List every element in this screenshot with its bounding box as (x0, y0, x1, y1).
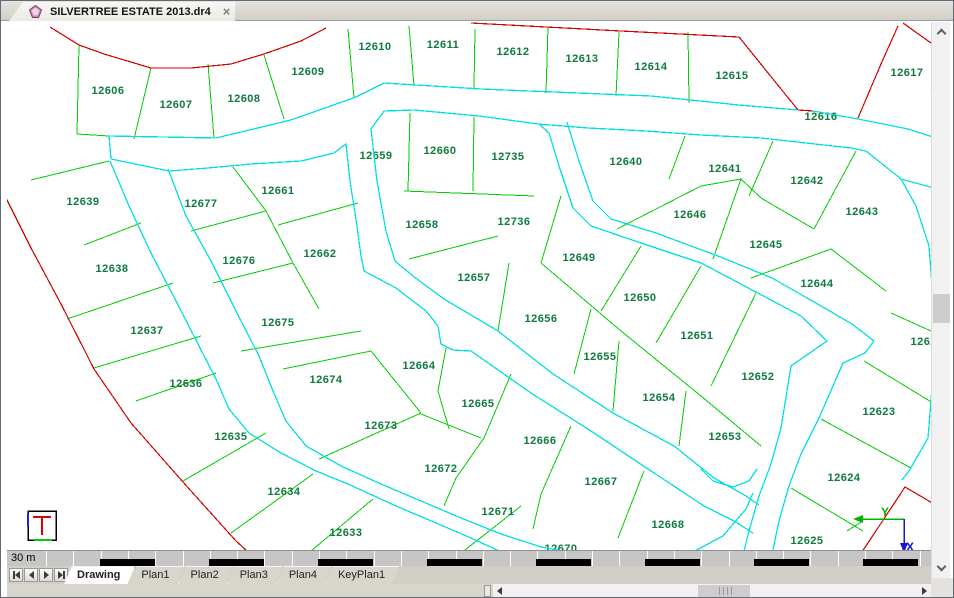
lot-label: 12634 (267, 486, 300, 498)
parcel-line (231, 474, 313, 533)
road-line (701, 469, 757, 487)
scale-label: 30 m (11, 552, 35, 564)
parcel-line (77, 134, 109, 136)
scale-tick (401, 551, 402, 566)
parcel-line (409, 236, 498, 259)
lot-label: 12637 (130, 325, 163, 337)
parcel-line (31, 161, 109, 180)
sheet-tab-plan3[interactable]: Plan3 (227, 566, 283, 584)
lot-label: 12658 (405, 219, 438, 231)
sheet-tab-plan4[interactable]: Plan4 (276, 566, 332, 584)
lot-label: 12736 (497, 216, 530, 228)
lot-label: 12615 (715, 70, 748, 82)
lot-label: 12646 (673, 209, 706, 221)
parcel-line (409, 26, 414, 86)
lot-label: 12609 (291, 66, 324, 78)
road-line (109, 136, 111, 159)
lot-label: 12673 (364, 420, 397, 432)
lot-label: 12625 (790, 535, 823, 547)
tab-splitter-handle[interactable] (484, 585, 491, 597)
parcel-line (791, 488, 863, 531)
scale-segment (318, 559, 373, 566)
parcel-line (278, 203, 358, 225)
horizontal-scroll-thumb[interactable] (698, 585, 750, 597)
axis-y-label: Y (881, 505, 889, 519)
next-sheet-button[interactable] (39, 568, 53, 582)
axis-x-label: X (906, 540, 914, 550)
lot-label: 12650 (623, 292, 656, 304)
road-line (168, 169, 753, 550)
parcel-line (348, 29, 354, 98)
parcel-line (473, 117, 474, 191)
lot-label: 12645 (749, 239, 782, 251)
lot-label: 12666 (523, 435, 556, 447)
parcel-line (669, 136, 685, 179)
lot-label: 12640 (609, 156, 642, 168)
lot-label: 12642 (790, 175, 823, 187)
scale-segment (209, 559, 264, 566)
scrollbar-corner (931, 578, 954, 598)
parcel-line (761, 198, 814, 229)
lot-label: 12660 (423, 145, 456, 157)
lot-label: 12643 (845, 206, 878, 218)
lot-label: 12675 (261, 317, 294, 329)
parcel-line (134, 68, 151, 139)
scale-bar: 30 m (7, 550, 931, 566)
parcel-line (456, 438, 484, 478)
lot-label: 12633 (329, 527, 362, 539)
scale-tick (592, 551, 593, 566)
parcel-line (618, 471, 644, 538)
lot-label: 12610 (358, 41, 391, 53)
lot-label: 12614 (634, 61, 667, 73)
lot-label: 12635 (214, 431, 247, 443)
scale-segment (645, 559, 700, 566)
drawing-canvas[interactable]: 1260612607126081260912610126111261212613… (7, 22, 931, 550)
scale-tick (73, 551, 74, 566)
scale-segment (863, 559, 918, 566)
lot-label: 12662 (303, 248, 336, 260)
parcel-line (444, 478, 456, 506)
first-sheet-button[interactable] (9, 568, 23, 582)
parcel-line (408, 113, 410, 191)
lot-label: 12676 (222, 255, 255, 267)
lot-label: 12653 (708, 431, 741, 443)
lot-label: 12649 (562, 252, 595, 264)
scale-tick (292, 551, 293, 566)
lot-label: 12606 (91, 85, 124, 97)
scroll-up-icon[interactable] (937, 29, 947, 39)
parcel-line (688, 32, 689, 103)
vertical-scrollbar[interactable] (931, 22, 950, 578)
scale-tick (838, 551, 839, 566)
scale-tick (619, 551, 620, 566)
document-tab-bar: SILVERTREE ESTATE 2013.dr4 × (1, 1, 953, 21)
road-line (538, 124, 931, 193)
lot-label: 12668 (651, 519, 684, 531)
parcel-line (498, 263, 509, 331)
parcel-line (831, 249, 886, 291)
parcel-line (864, 361, 931, 403)
lot-label: 12667 (584, 476, 617, 488)
scroll-left-icon[interactable] (497, 587, 502, 595)
close-icon[interactable]: × (223, 5, 231, 18)
parcel-line (821, 419, 911, 468)
drawing-file-icon (29, 5, 42, 18)
lot-label: 12617 (890, 67, 923, 79)
lot-label: 12644 (800, 278, 833, 290)
lot-label: 12608 (227, 93, 260, 105)
parcel-line (84, 223, 141, 245)
parcel-line (713, 179, 741, 259)
scroll-right-icon[interactable] (922, 587, 927, 595)
horizontal-scroll-row (7, 584, 931, 598)
sheet-tab-keyplan1[interactable]: KeyPlan1 (325, 566, 400, 584)
lot-label: 12612 (496, 46, 529, 58)
parcel-line (741, 179, 761, 198)
parcel-line (283, 351, 371, 369)
parcel-line (679, 391, 686, 446)
lot-label: 12607 (159, 99, 192, 111)
parcel-line (616, 32, 619, 96)
lot-label: 12657 (457, 272, 490, 284)
parcel-line (891, 313, 931, 331)
scale-tick (374, 551, 375, 566)
sheet-tab-plan1[interactable]: Plan1 (128, 566, 184, 584)
scale-tick (920, 551, 921, 566)
axis-indicator (853, 515, 863, 523)
parcel-line (293, 263, 319, 309)
lot-label: 12659 (359, 150, 392, 162)
sheet-nav-buttons (9, 568, 68, 582)
parcel-line (94, 336, 201, 368)
scale-tick (483, 551, 484, 566)
boundary-line (903, 23, 931, 59)
parcel-line (749, 141, 773, 196)
lot-label: 12677 (184, 198, 217, 210)
lot-label: 12611 (427, 39, 459, 51)
parcel-line (266, 211, 293, 263)
parcel-line (617, 186, 701, 229)
app-window: SILVERTREE ESTATE 2013.dr4 × 12606126071… (0, 0, 954, 598)
document-tab[interactable]: SILVERTREE ESTATE 2013.dr4 × (9, 2, 235, 21)
lot-label: 12672 (424, 463, 457, 475)
sheet-tab-drawing[interactable]: Drawing (64, 566, 135, 584)
lot-label: 12613 (565, 53, 598, 65)
horizontal-scrollbar[interactable] (493, 584, 931, 598)
scale-segment (427, 559, 482, 566)
parcel-line (67, 283, 173, 319)
lot-label: 12652 (741, 371, 774, 383)
road-line (110, 161, 521, 550)
lot-label: 12624 (827, 472, 860, 484)
lot-label: 12623 (862, 406, 895, 418)
parcel-line (404, 191, 534, 196)
lot-label: 12656 (524, 313, 557, 325)
parcel-line (574, 309, 591, 374)
road-line (109, 83, 798, 138)
lot-label: 12674 (309, 374, 342, 386)
scroll-down-icon[interactable] (937, 562, 947, 572)
lot-label: 12651 (680, 330, 713, 342)
parcel-line (299, 499, 373, 550)
boundary-line (7, 196, 259, 550)
parcel-line (241, 331, 361, 351)
scale-tick (46, 551, 47, 566)
lot-label: 12622 (910, 336, 931, 348)
sheet-tabs: DrawingPlan1Plan2Plan3Plan4KeyPlan1 (71, 566, 400, 584)
parcel-line (541, 196, 561, 263)
sheet-tab-row: DrawingPlan1Plan2Plan3Plan4KeyPlan1 (7, 566, 931, 584)
parcel-line (208, 64, 214, 138)
parcel-line (533, 494, 541, 529)
scale-segment (100, 559, 155, 566)
scale-segment (536, 559, 591, 566)
parcel-line (438, 348, 446, 391)
document-title: SILVERTREE ESTATE 2013.dr4 (50, 6, 211, 18)
parcel-line (546, 27, 548, 93)
lot-label: 12636 (169, 378, 202, 390)
scale-tick (729, 551, 730, 566)
road-line (371, 110, 538, 129)
parcel-line (191, 211, 266, 231)
scale-tick (264, 551, 265, 566)
scale-tick (155, 551, 156, 566)
parcel-line (474, 29, 475, 88)
lot-label: 12655 (583, 351, 616, 363)
lot-label: 12641 (708, 163, 741, 175)
parcel-line (77, 45, 79, 134)
lot-label: 12639 (66, 196, 99, 208)
scale-tick (510, 551, 511, 566)
scale-segment (754, 559, 809, 566)
lot-label: 12661 (261, 185, 294, 197)
sheet-tab-plan2[interactable]: Plan2 (178, 566, 234, 584)
lot-label: 12638 (95, 263, 128, 275)
lot-label: 12665 (461, 398, 494, 410)
boundary-line (50, 27, 326, 68)
parcel-line (701, 179, 741, 186)
parcel-line (421, 414, 481, 438)
previous-sheet-button[interactable] (24, 568, 38, 582)
lot-label: 12664 (402, 360, 435, 372)
scale-tick (183, 551, 184, 566)
scale-tick (810, 551, 811, 566)
scale-tick (701, 551, 702, 566)
lot-label: 12654 (642, 392, 675, 404)
lot-label: 12735 (491, 151, 524, 163)
lot-label: 12671 (481, 506, 514, 518)
vertical-scroll-thumb[interactable] (933, 294, 950, 323)
parcel-line (264, 55, 284, 119)
